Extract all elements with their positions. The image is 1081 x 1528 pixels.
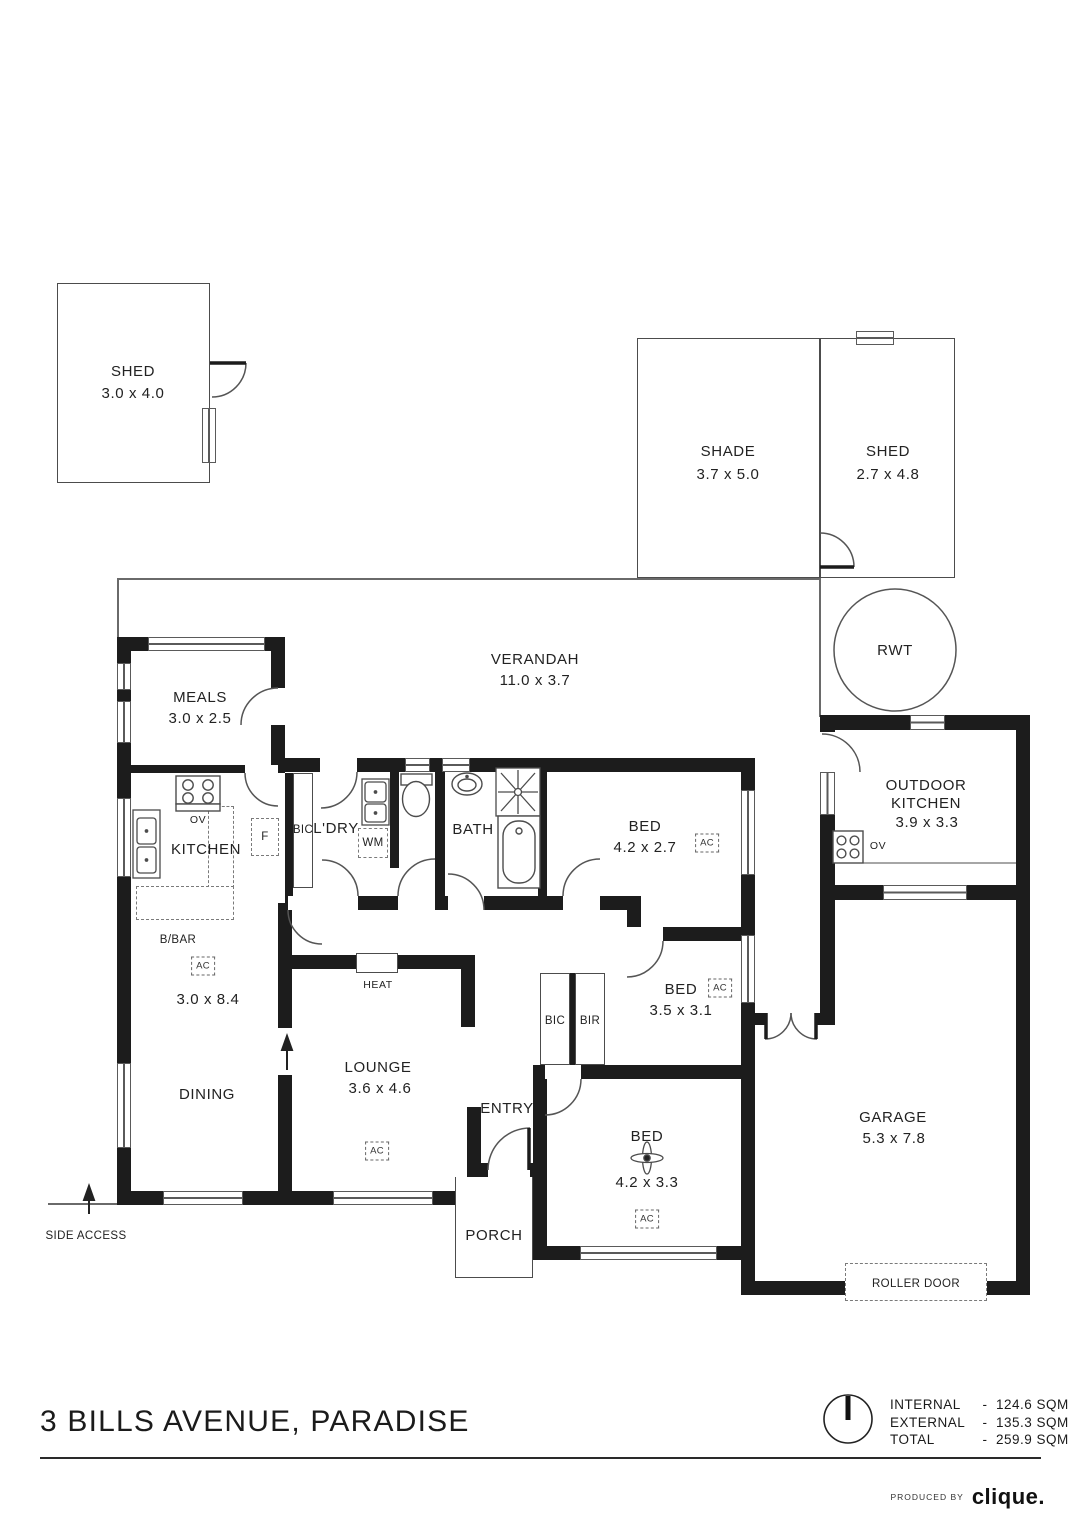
room-label-bed1: BED <box>629 817 662 837</box>
room-label-kitchen: KITCHEN <box>171 840 241 860</box>
door-opening <box>320 758 357 772</box>
door-opening <box>398 896 435 910</box>
room-dims-bed3: 4.2 x 3.3 <box>616 1173 679 1193</box>
room-label-garage: GARAGE <box>859 1108 927 1128</box>
kitchen-sink-icon <box>133 810 160 878</box>
outdoor-cooktop-icon <box>833 831 1016 863</box>
window <box>820 772 835 815</box>
room-label-ldry: L'DRY <box>313 819 359 839</box>
room-dims-garage: 5.3 x 7.8 <box>863 1129 926 1149</box>
door-opening <box>627 927 663 941</box>
hall-arrow-icon <box>282 1036 292 1070</box>
wall <box>435 765 445 896</box>
room-dims-lounge: 3.6 x 4.6 <box>349 1079 412 1099</box>
roller-door-label: ROLLER DOOR <box>872 1274 960 1294</box>
window <box>117 798 131 877</box>
wall <box>815 1013 835 1025</box>
laundry-trough-icon <box>362 779 389 825</box>
shed-left-outline <box>57 283 210 483</box>
wall <box>285 773 293 896</box>
window <box>856 331 894 345</box>
area-label: INTERNAL <box>890 1396 974 1414</box>
bir-label-bed2: BIR <box>580 1011 600 1031</box>
door-opening <box>820 732 835 772</box>
door-arc <box>765 1013 791 1039</box>
window <box>741 935 755 1003</box>
window <box>148 637 265 651</box>
door-arc <box>545 1079 581 1115</box>
room-label-outdoor-kitchen-2: KITCHEN <box>891 794 961 814</box>
room-label-bed2: BED <box>665 980 698 1000</box>
ac-unit-lounge: AC <box>365 1142 389 1161</box>
room-dims-bed2: 3.5 x 3.1 <box>650 1001 713 1021</box>
area-value: 135.3 SQM <box>996 1414 1069 1432</box>
verandah-line-right <box>819 578 821 717</box>
area-sep: - <box>974 1396 996 1414</box>
door-arc <box>791 1013 817 1039</box>
room-label-lounge: LOUNGE <box>345 1058 412 1078</box>
producer-brand: clique. <box>972 1484 1045 1510</box>
window <box>442 758 470 772</box>
area-value: 124.6 SQM <box>996 1396 1069 1414</box>
window <box>202 408 216 463</box>
heater-label: HEAT <box>363 975 393 995</box>
bathtub-icon <box>498 816 540 888</box>
verandah-line-top <box>117 578 820 580</box>
door-opening <box>322 896 358 910</box>
window <box>883 885 967 900</box>
door-opening <box>488 1163 530 1177</box>
ac-unit-kitchen: AC <box>191 957 215 976</box>
room-label-porch: PORCH <box>465 1226 522 1246</box>
area-value: 259.9 SQM <box>996 1431 1069 1449</box>
shower-icon <box>496 768 540 816</box>
ac-unit-bed1: AC <box>695 834 719 853</box>
toilet-icon <box>401 774 432 817</box>
room-dims-verandah: 11.0 x 3.7 <box>500 671 571 691</box>
area-label: EXTERNAL <box>890 1414 974 1432</box>
north-compass-icon <box>824 1395 872 1443</box>
room-dims-shed-right: 2.7 x 4.8 <box>857 465 920 485</box>
area-summary: INTERNAL-124.6 SQM EXTERNAL-135.3 SQM TO… <box>890 1396 1069 1449</box>
room-label-shed-left: SHED <box>111 362 155 382</box>
bic-label-bed2: BIC <box>545 1011 565 1031</box>
side-access-label: SIDE ACCESS <box>41 1228 131 1244</box>
room-label-outdoor-kitchen-1: OUTDOOR <box>886 776 967 796</box>
bic-label-hall: BIC <box>293 820 313 840</box>
door-arc <box>288 910 322 944</box>
wall <box>538 758 547 910</box>
breakfast-bar-label: B/BAR <box>160 930 197 950</box>
window <box>117 701 131 743</box>
room-dims-bed1: 4.2 x 2.7 <box>614 838 677 858</box>
room-dims-shed-left: 3.0 x 4.0 <box>102 384 165 404</box>
room-label-bed3: BED <box>631 1127 664 1147</box>
room-dims-shade: 3.7 x 5.0 <box>697 465 760 485</box>
room-dims-outdoor-kitchen: 3.9 x 3.3 <box>896 813 959 833</box>
oven-label: OV <box>190 810 206 830</box>
area-sep: - <box>974 1414 996 1432</box>
footer-rule <box>40 1457 1041 1459</box>
wall <box>278 1075 292 1205</box>
room-label-entry: ENTRY <box>480 1099 534 1119</box>
basin-icon <box>452 773 482 795</box>
producer-credit: PRODUCED BY clique. <box>890 1484 1045 1510</box>
door-opening <box>563 896 600 910</box>
room-label-rwt: RWT <box>877 641 913 661</box>
wall <box>1016 715 1030 1295</box>
window <box>163 1191 243 1205</box>
room-label-meals: MEALS <box>173 688 227 708</box>
area-label: TOTAL <box>890 1431 974 1449</box>
door-arc <box>212 363 246 397</box>
window <box>333 1191 433 1205</box>
window <box>580 1246 717 1260</box>
produced-by-label: PRODUCED BY <box>890 1492 963 1502</box>
window <box>117 1063 131 1148</box>
fridge-label: F <box>261 827 268 847</box>
door-arc <box>398 859 435 896</box>
area-row-internal: INTERNAL-124.6 SQM <box>890 1396 1069 1414</box>
side-access-line <box>48 1203 117 1205</box>
window <box>910 715 945 730</box>
breakfast-bar-counter <box>136 886 234 920</box>
oven-label-outdoor: OV <box>870 836 886 856</box>
side-access-arrow-icon <box>84 1186 94 1214</box>
door-opening <box>448 896 484 910</box>
room-label-shed-right: SHED <box>866 442 910 462</box>
door-arc <box>245 773 278 806</box>
window <box>405 758 430 772</box>
ac-unit-bed3: AC <box>635 1210 659 1229</box>
door-opening <box>271 688 285 725</box>
wm-label: WM <box>362 833 383 853</box>
door-arc <box>627 941 663 977</box>
window <box>741 790 755 875</box>
door-opening <box>245 765 278 773</box>
room-label-verandah: VERANDAH <box>491 650 579 670</box>
wall <box>755 1013 765 1025</box>
heater-unit <box>356 953 398 973</box>
area-sep: - <box>974 1431 996 1449</box>
room-label-bath: BATH <box>452 820 493 840</box>
door-opening <box>288 896 322 910</box>
room-label-shade: SHADE <box>701 442 756 462</box>
door-arc <box>321 772 357 808</box>
door-arc <box>322 860 358 896</box>
room-label-dining: DINING <box>179 1085 235 1105</box>
room-dims-meals: 3.0 x 2.5 <box>169 709 232 729</box>
wall <box>390 765 399 868</box>
ac-unit-bed2: AC <box>708 979 732 998</box>
page-title: 3 BILLS AVENUE, PARADISE <box>40 1405 470 1439</box>
door-opening <box>545 1065 581 1079</box>
area-row-total: TOTAL-259.9 SQM <box>890 1431 1069 1449</box>
area-row-external: EXTERNAL-135.3 SQM <box>890 1414 1069 1432</box>
door-arc <box>563 859 600 896</box>
window <box>117 663 131 690</box>
wall <box>461 969 475 1027</box>
floor-plan: SHED 3.0 x 4.0 SHADE 3.7 x 5.0 SHED 2.7 … <box>0 0 1081 1528</box>
room-dims-kitchen-dining: 3.0 x 8.4 <box>177 990 240 1010</box>
verandah-line-left <box>117 578 119 639</box>
